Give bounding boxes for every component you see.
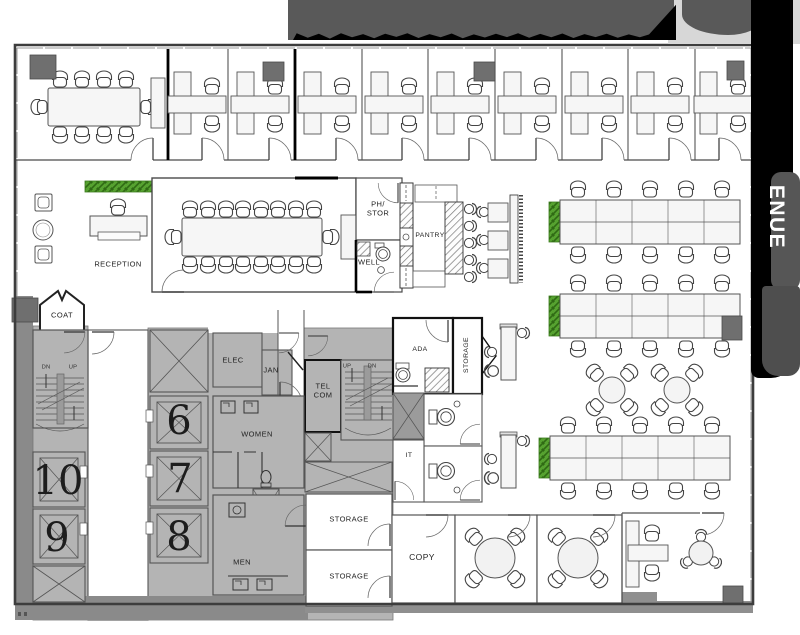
room-label-coat: COAT (51, 312, 73, 321)
gray-blob-bottom (762, 286, 800, 376)
meeting-room-1 (455, 515, 537, 603)
pantry-counter (445, 202, 463, 274)
shaft-x-small (305, 433, 331, 461)
room-label-elec: ELEC (222, 357, 243, 366)
stair1-dn-label: DN (42, 365, 51, 372)
restrooms (213, 396, 306, 595)
elevator-10-number: 10 (33, 461, 84, 501)
stair1-up-label: UP (69, 365, 77, 372)
stair2-up-label: UP (343, 364, 351, 371)
room-label-jan: JAN (263, 367, 278, 376)
room-label-well: WELL (358, 259, 380, 268)
floorplan-page: ENUE RECEPTION COAT ELEC JAN TEL COM WOM… (0, 0, 800, 635)
floorplan-svg (0, 0, 800, 635)
meeting-room-2 (537, 515, 622, 603)
room-label-reception: RECEPTION (94, 261, 141, 270)
room-label-phstor: PH/ STOR (367, 200, 389, 217)
stair-1 (33, 330, 88, 431)
elevator-9-number: 9 (44, 518, 69, 558)
elevator-7-number: 7 (167, 459, 192, 499)
room-label-copy: COPY (409, 553, 435, 563)
lounge-seating (33, 194, 53, 263)
shaft-x-top (150, 330, 208, 392)
ada-block (393, 318, 496, 502)
stair2-dn-label: DN (368, 364, 377, 371)
booth-seating (477, 195, 522, 283)
shaft-x-wide (305, 462, 392, 492)
banner-wedge (644, 0, 676, 40)
elevator-8-number: 8 (166, 517, 191, 557)
it-column (393, 393, 424, 439)
main-conference-room (152, 178, 356, 292)
top-banner (288, 0, 674, 40)
room-label-men: MEN (233, 559, 251, 568)
room-label-storage-core: STORAGE (463, 337, 471, 373)
shaft-x-bottom (33, 566, 85, 602)
room-label-storage-2: STORAGE (329, 573, 368, 582)
women-restroom (213, 396, 304, 488)
phstor-well-rooms (356, 178, 402, 292)
single-toilet-1 (424, 394, 482, 446)
room-label-it: IT (406, 452, 413, 460)
single-toilet-2 (424, 446, 482, 502)
men-restroom (213, 495, 306, 595)
banner-cropped-text (293, 31, 662, 40)
planter (85, 181, 152, 192)
elevator-6-number: 6 (166, 401, 191, 441)
room-label-storage-1: STORAGE (329, 516, 368, 525)
room-label-telcom: TEL COM (314, 382, 333, 399)
room-label-women: WOMEN (241, 431, 273, 440)
it-room (393, 440, 424, 502)
stair-2 (341, 360, 395, 440)
room-label-pantry: PANTRY (415, 232, 444, 240)
street-name-label: ENUE (755, 172, 797, 262)
room-label-ada: ADA (412, 346, 427, 354)
